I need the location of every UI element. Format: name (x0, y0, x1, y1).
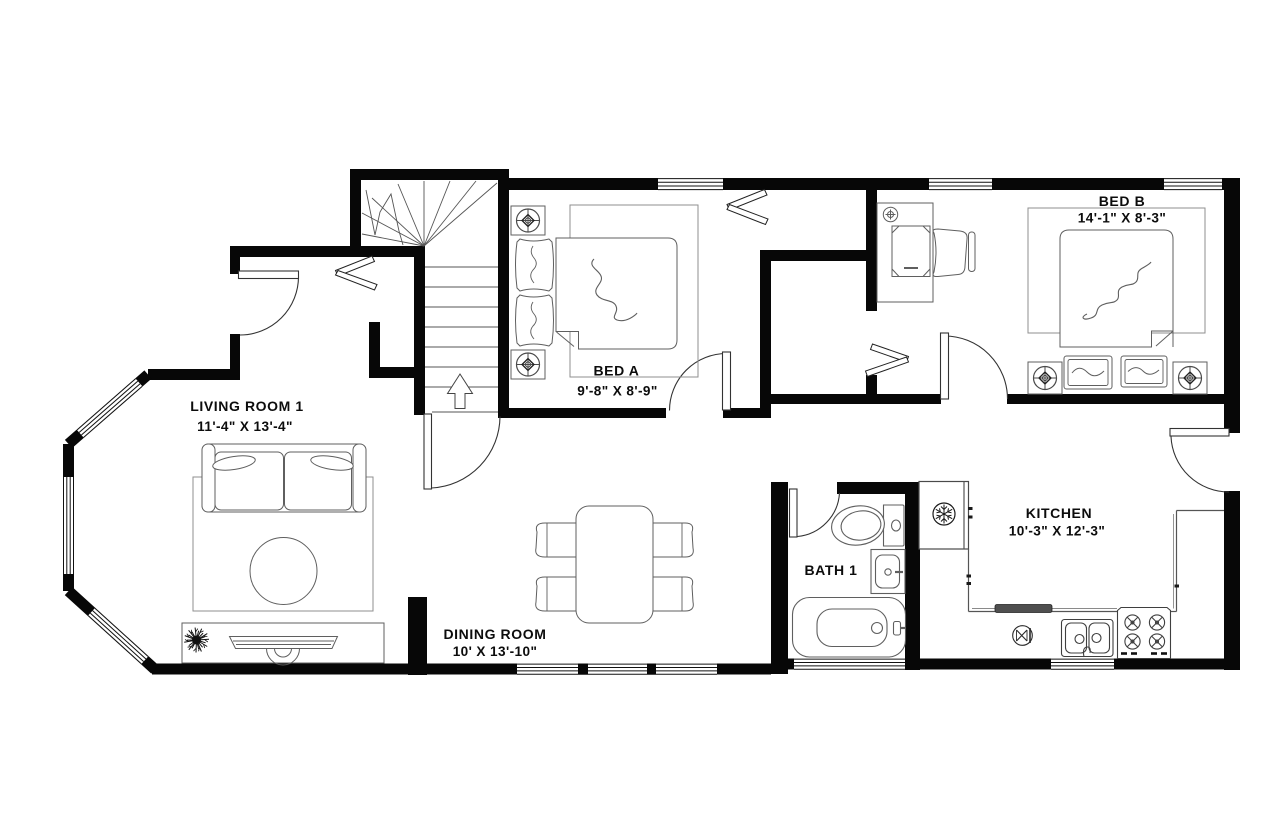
svg-text:LIVING ROOM 1: LIVING ROOM 1 (190, 398, 304, 414)
svg-text:14'-1" X 8'-3": 14'-1" X 8'-3" (1078, 211, 1166, 226)
svg-text:KITCHEN: KITCHEN (1026, 505, 1092, 521)
svg-text:DINING ROOM: DINING ROOM (443, 626, 546, 642)
svg-text:10' X 13'-10": 10' X 13'-10" (453, 644, 538, 659)
svg-text:9'-8" X 8'-9": 9'-8" X 8'-9" (577, 384, 657, 399)
svg-text:BED B: BED B (1099, 193, 1146, 209)
svg-text:BED A: BED A (593, 363, 639, 379)
svg-text:11'-4" X 13'-4": 11'-4" X 13'-4" (197, 419, 293, 434)
svg-text:10'-3" X 12'-3": 10'-3" X 12'-3" (1009, 524, 1105, 539)
svg-text:BATH 1: BATH 1 (804, 562, 857, 578)
